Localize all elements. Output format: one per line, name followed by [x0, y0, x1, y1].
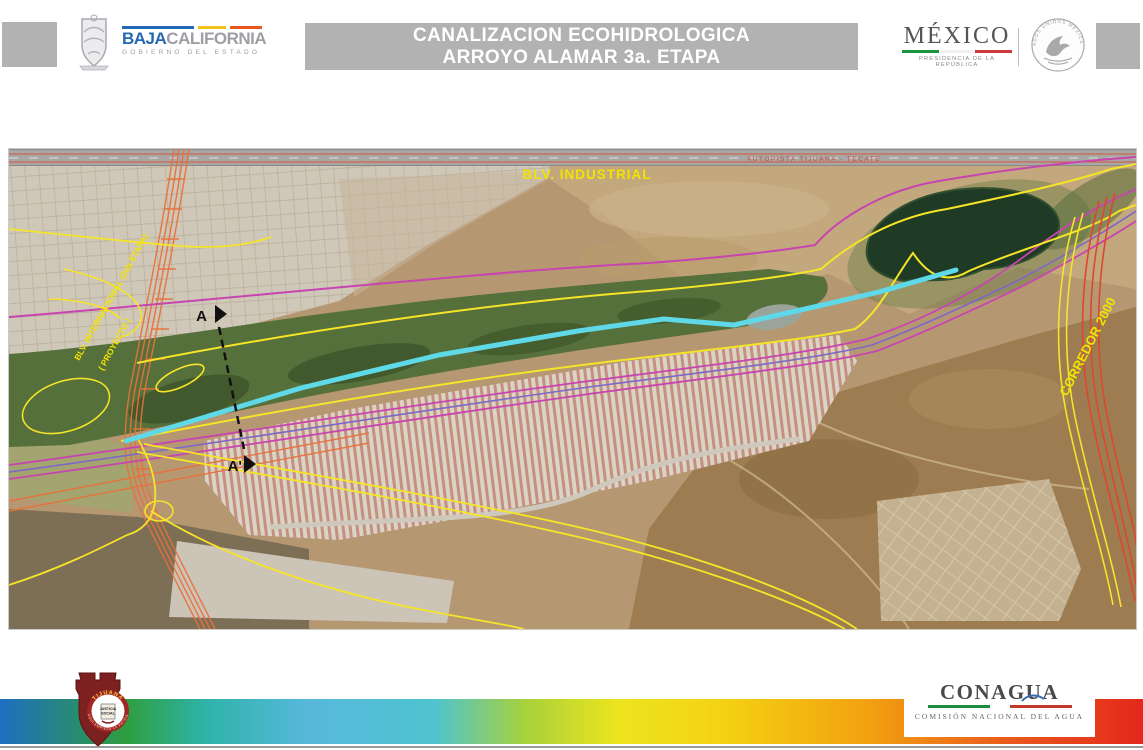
mexico-logo-name: MÉXICO	[898, 24, 1016, 48]
slide-title-line1: CANALIZACION ECOHIDROLOGICA	[413, 25, 750, 47]
label-autopista: AUTOPISTA TIJUANA - TECATE	[747, 156, 881, 163]
mexico-tricolor-bar	[902, 50, 1012, 53]
slide: BAJACALIFORNIA GOBIERNO DEL ESTADO CANAL…	[0, 0, 1143, 750]
bc-logo-tagline: GOBIERNO DEL ESTADO	[122, 49, 266, 56]
water-swoosh-icon	[1020, 693, 1046, 703]
slide-title-bar: CANALIZACION ECOHIDROLOGICA ARROYO ALAMA…	[305, 23, 858, 70]
conagua-logo-tagline: COMISIÓN NACIONAL DEL AGUA	[904, 712, 1095, 721]
header-divider	[1018, 28, 1019, 66]
mexico-national-seal-icon: ESTADOS UNIDOS MEXICANOS	[1028, 14, 1088, 76]
svg-text:SOCIAL: SOCIAL	[101, 712, 115, 716]
conagua-bicolor-bar	[904, 705, 1095, 708]
conagua-logo: CONAGUA COMISIÓN NACIONAL DEL AGUA	[904, 672, 1095, 737]
bc-logo-text: BAJACALIFORNIA GOBIERNO DEL ESTADO	[122, 12, 266, 74]
mexico-logo-tagline: PRESIDENCIA DE LA REPÚBLICA	[898, 56, 1016, 68]
mexico-logo: MÉXICO PRESIDENCIA DE LA REPÚBLICA	[898, 24, 1016, 68]
bc-logo-name: BAJACALIFORNIA	[122, 31, 266, 46]
header-right-gray-block	[1096, 23, 1140, 69]
section-marker-a-prime: A'	[228, 458, 242, 475]
satellite-map: A A' BLV. INDUSTRIAL AUTOPISTA TIJUANA -…	[8, 148, 1137, 630]
header-left-gray-block	[2, 22, 57, 67]
bc-coat-of-arms-icon	[78, 12, 110, 72]
tijuana-city-crest-icon: TIJUANA AQUI EMPIEZA LA PATRIA JUSTICIA …	[73, 671, 143, 750]
conagua-logo-name: CONAGUA	[904, 682, 1095, 703]
baja-california-logo: BAJACALIFORNIA GOBIERNO DEL ESTADO	[78, 12, 293, 74]
label-blv-industrial: BLV. INDUSTRIAL	[522, 167, 651, 182]
section-marker-a: A	[196, 308, 207, 325]
slide-title-line2: ARROYO ALAMAR 3a. ETAPA	[442, 47, 720, 69]
map-canvas: A A' BLV. INDUSTRIAL AUTOPISTA TIJUANA -…	[9, 149, 1136, 629]
svg-text:JUSTICIA: JUSTICIA	[100, 707, 117, 711]
footer-underline	[0, 746, 1143, 748]
